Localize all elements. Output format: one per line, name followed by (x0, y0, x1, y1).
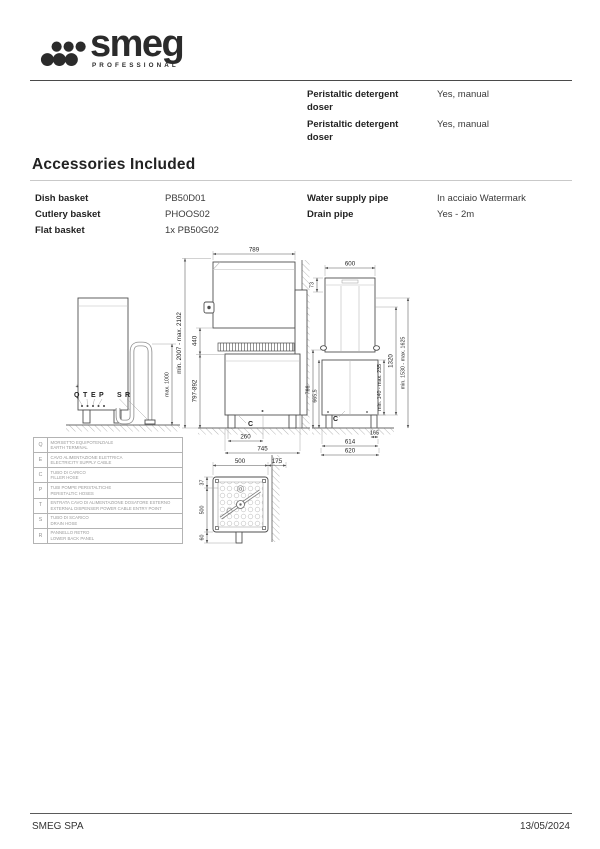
spec-table: Peristaltic detergent doser Yes, manual … (307, 86, 577, 146)
side-view-drawing: 600 73 766 665,5 min. 140 - max. 235 132… (306, 261, 411, 456)
dim-work-height: 797-892 (192, 379, 199, 402)
spec-value: Yes, manual (437, 89, 489, 102)
legend-text-en: EXTERNAL DISPENSER POWER CABLE ENTRY POI… (51, 506, 180, 512)
dim-1320: 1320 (388, 354, 395, 368)
earth-symbol: + (76, 384, 79, 390)
top-divider (30, 80, 572, 81)
legend-key: C (34, 468, 48, 483)
dim-front-width: 789 (249, 247, 260, 254)
dim-766: 766 (306, 386, 312, 395)
spec-row: Peristaltic detergent doser Yes, manual (307, 86, 577, 116)
dim-wall-gap: 175 (272, 458, 283, 465)
connection-letter-r: R (125, 392, 130, 399)
connections-legend: Q MORSETTO EQUIPOTENZIALEEARTH TERMINAL … (33, 437, 183, 544)
legend-text-it: ENTRATA CAVO DI ALIMENTAZIONE DOSATORE E… (51, 500, 180, 506)
legend-row: R PANNELLO RETROLOWER BACK PANEL (34, 528, 183, 543)
legend-row: C TUBO DI CARICOFILLER HOSE (34, 468, 183, 483)
legend-key: R (34, 528, 48, 543)
footer-divider (30, 813, 572, 814)
accessory-label: Dish basket (35, 193, 165, 204)
legend-key: T (34, 498, 48, 513)
spec-value: Yes, manual (437, 119, 489, 132)
connection-letter-t: T (83, 392, 88, 399)
accessories-divider (30, 180, 572, 181)
back-view-drawing: + Q T E P S R max. 1000 (66, 298, 180, 432)
accessories-heading: Accessories Included (32, 156, 195, 174)
accessories-table-right: Water supply pipe In acciaio Watermark D… (307, 190, 526, 222)
spec-label: Peristaltic detergent doser (307, 89, 422, 114)
legend-row: T ENTRATA CAVO DI ALIMENTAZIONE DOSATORE… (34, 498, 183, 513)
connection-letter-p: P (99, 392, 104, 399)
dim-drain-offset: 260 (240, 434, 251, 441)
accessory-label: Water supply pipe (307, 193, 437, 204)
accessory-row: Cutlery basket PHOOS02 (35, 206, 219, 222)
dim-clearance: min. 140 - max. 235 (377, 364, 383, 411)
datasheet-page: smeg PROFESSIONAL Peristaltic detergent … (0, 0, 600, 849)
accessory-label: Drain pipe (307, 209, 437, 220)
accessories-table-left: Dish basket PB50D01 Cutlery basket PHOOS… (35, 190, 219, 238)
dim-665: 665,5 (313, 389, 319, 402)
dim-614: 614 (345, 439, 356, 446)
legend-key: S (34, 513, 48, 528)
dim-top-offset: 73 (310, 282, 316, 288)
accessory-value: PB50D01 (165, 193, 206, 204)
accessory-value: In acciaio Watermark (437, 193, 526, 204)
logo-subtitle: PROFESSIONAL (92, 62, 183, 69)
legend-key: E (34, 453, 48, 468)
accessory-row: Flat basket 1x PB50G02 (35, 222, 219, 238)
legend-row: Q MORSETTO EQUIPOTENZIALEEARTH TERMINAL (34, 438, 183, 453)
basket-rack (218, 343, 294, 351)
connection-letter-s: S (117, 392, 122, 399)
dim-drain-height: max. 1000 (165, 372, 171, 397)
hood-side (325, 278, 375, 352)
section-label-front: C (248, 421, 253, 428)
accessory-value: 1x PB50G02 (165, 225, 219, 236)
dim-side-width: 600 (345, 261, 356, 268)
top-view-drawing: 500 175 37 500 60 (200, 455, 287, 543)
dim-620: 620 (345, 448, 356, 455)
legend-text-en: FILLER HOSE (51, 475, 180, 481)
accessory-row: Dish basket PB50D01 (35, 190, 219, 206)
dim-top-depth: 500 (200, 506, 206, 515)
spec-row: Peristaltic detergent doser Yes, manual (307, 116, 577, 146)
accessory-label: Flat basket (35, 225, 165, 236)
hood (213, 262, 295, 328)
accessory-row: Drain pipe Yes - 2m (307, 206, 526, 222)
accessory-label: Cutlery basket (35, 209, 165, 220)
dim-leg-offset: 165 (370, 431, 379, 437)
dim-37: 37 (200, 480, 206, 486)
footer-company: SMEG SPA (32, 821, 84, 832)
dim-side-overall: min. 1530 - max. 1625 (401, 337, 407, 390)
connection-letter-q: Q (74, 392, 80, 399)
legend-text-en: LOWER BACK PANEL (51, 536, 180, 542)
connection-letter-e: E (91, 392, 96, 399)
section-label-side: C (333, 416, 338, 423)
spec-label: Peristaltic detergent doser (307, 119, 422, 144)
front-view-drawing: 789 min. 2007 - max. 2102 440 797-892 26… (176, 247, 310, 454)
smeg-logo-dots-icon (40, 39, 88, 69)
dim-top-width: 500 (235, 458, 246, 465)
legend-row: P TUBI POMPE PERISTALTICHEPERISTALTIC HO… (34, 483, 183, 498)
dim-60: 60 (200, 535, 206, 541)
accessory-value: Yes - 2m (437, 209, 474, 220)
footer-date: 13/05/2024 (520, 821, 570, 832)
logo-wordmark: smeg (90, 27, 183, 61)
legend-row: E CAVO ALIMENTAZIONE ELETTRICAELECTRICIT… (34, 453, 183, 468)
accessory-row: Water supply pipe In acciaio Watermark (307, 190, 526, 206)
dim-overall-height: min. 2007 - max. 2102 (176, 312, 183, 374)
legend-row: S TUBO DI SCARICODRAIN HOSE (34, 513, 183, 528)
legend-text-en: EARTH TERMINAL (51, 445, 180, 451)
legend-key: Q (34, 438, 48, 453)
legend-text-en: ELECTRICITY SUPPLY CABLE (51, 460, 180, 466)
wash-chamber (225, 354, 300, 415)
legend-text-en: DRAIN HOSE (51, 521, 180, 527)
smeg-logo: smeg PROFESSIONAL (40, 27, 183, 69)
legend-key: P (34, 483, 48, 498)
legend-text-en: PERISTALTIC HOSES (51, 491, 180, 497)
dim-base-width: 745 (257, 446, 268, 453)
dim-hood-stroke: 440 (192, 335, 199, 346)
accessory-value: PHOOS02 (165, 209, 210, 220)
